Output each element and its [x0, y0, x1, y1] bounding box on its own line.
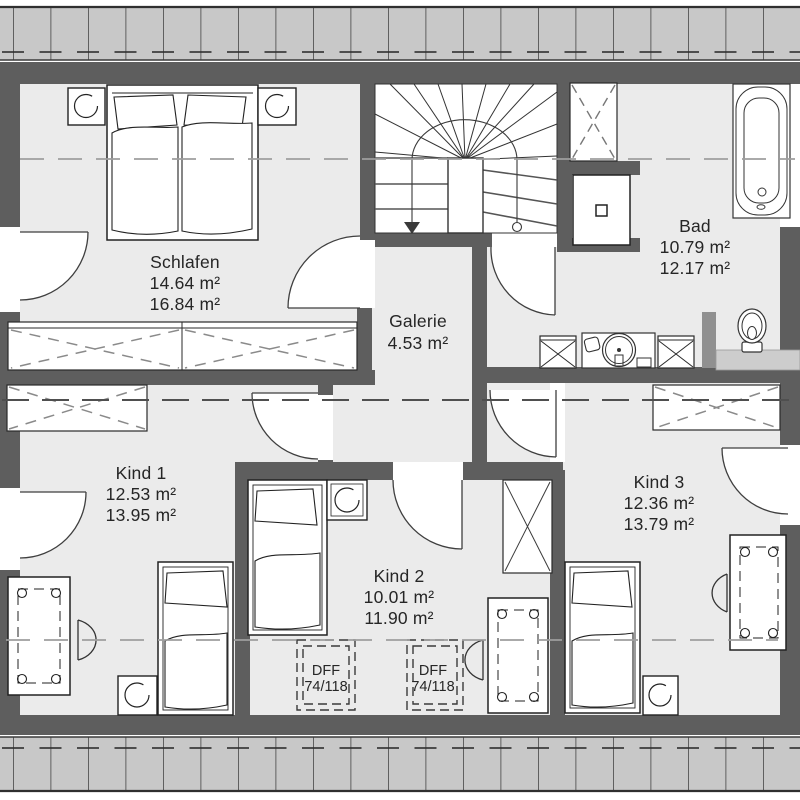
pillow: [572, 571, 632, 607]
pillow: [184, 95, 246, 127]
wardrobe-kind1: [7, 385, 147, 431]
room-area-net: 14.64 m²: [150, 273, 221, 293]
room-area-gross: 11.90 m²: [364, 608, 433, 628]
room-area-net: 12.36 m²: [624, 493, 695, 513]
wardrobe-kind3: [653, 385, 780, 430]
room-label-kind3: Kind 3 12.36 m² 13.79 m²: [624, 472, 695, 534]
bath-cabinet-left: [540, 336, 576, 368]
stair-newel: [448, 158, 483, 233]
roof-strip-bottom: [0, 737, 800, 791]
room-label-kind2: Kind 2 10.01 m² 11.90 m²: [364, 566, 435, 628]
room-area-gross: 13.95 m²: [106, 505, 177, 525]
opening-kind2-door: [393, 462, 463, 480]
pillow: [114, 95, 177, 129]
duvet: [572, 633, 633, 707]
double-bed: [107, 85, 258, 240]
duvet: [112, 127, 178, 234]
ventilation-shaft: [570, 83, 617, 161]
wall-kind1-door-jamb-top: [318, 378, 333, 395]
pillow: [255, 489, 317, 525]
room-area-net: 12.53 m²: [106, 484, 177, 504]
kind1-desk: [8, 577, 70, 695]
dff-label: DFF: [312, 663, 340, 679]
room-area-net: 10.79 m²: [660, 237, 731, 257]
kind2-desk: [488, 598, 548, 713]
kind3-nightstand: [643, 676, 678, 715]
opening-kind1-door: [318, 395, 333, 460]
chimney-flue: [596, 205, 607, 216]
dff-size: 74/118: [411, 679, 454, 695]
room-name: Kind 2: [374, 566, 425, 586]
room-area-gross: 12.17 m²: [660, 258, 731, 278]
opening-schlafen-door: [360, 240, 375, 308]
duvet: [182, 123, 252, 234]
dff-label: DFF: [419, 663, 447, 679]
opening-kind1-left: [0, 488, 20, 570]
kind1-nightstand: [118, 676, 157, 715]
room-area-net: 10.01 m²: [364, 587, 435, 607]
room-name: Galerie: [389, 311, 447, 331]
wall-toilet-stub: [702, 312, 716, 368]
wardrobe-schlafen: [8, 322, 357, 370]
wall-galerie-right: [472, 247, 487, 462]
opening-bad-door: [492, 233, 557, 247]
washbasin: [582, 333, 655, 368]
room-area-gross: 13.79 m²: [624, 514, 695, 534]
kind2-bed: [248, 480, 327, 635]
kind3-desk: [730, 535, 786, 650]
roof-strip-top: [0, 6, 800, 60]
wall-exterior-bottom: [0, 715, 800, 735]
wall-shaft-separator: [557, 161, 640, 175]
room-area-net: 4.53 m²: [388, 333, 449, 353]
kind3-bed: [565, 562, 640, 713]
wall-stair-left: [360, 84, 375, 240]
floor-plan-page: { "plan_title": "Dachgeschoss Grundriss"…: [0, 0, 800, 800]
room-name: Bad: [679, 216, 711, 236]
opening-schlafen-left: [0, 227, 20, 312]
nightstand-left: [68, 88, 105, 125]
room-name: Kind 1: [116, 463, 167, 483]
room-name: Schlafen: [150, 252, 220, 272]
nightstand-right: [258, 88, 296, 125]
room-label-schlafen: Schlafen 14.64 m² 16.84 m²: [150, 252, 221, 314]
bath-cabinet-right: [658, 336, 694, 368]
duvet: [165, 633, 227, 709]
room-name: Kind 3: [634, 472, 685, 492]
kind2-nightstand: [327, 480, 367, 520]
wall-exterior-top: [0, 62, 800, 84]
bathtub: [733, 84, 790, 218]
duvet: [255, 553, 320, 629]
toilet: [738, 309, 766, 352]
wardrobe-kind2: [503, 480, 552, 573]
room-label-kind1: Kind 1 12.53 m² 13.95 m²: [106, 463, 177, 525]
toilet-platform: [716, 350, 800, 370]
pillow: [165, 571, 227, 607]
room-area-gross: 16.84 m²: [150, 294, 221, 314]
floor-plan-svg: Schlafen 14.64 m² 16.84 m² Galerie 4.53 …: [0, 0, 800, 800]
dff-size: 74/118: [304, 679, 347, 695]
kind1-bed: [158, 562, 233, 715]
